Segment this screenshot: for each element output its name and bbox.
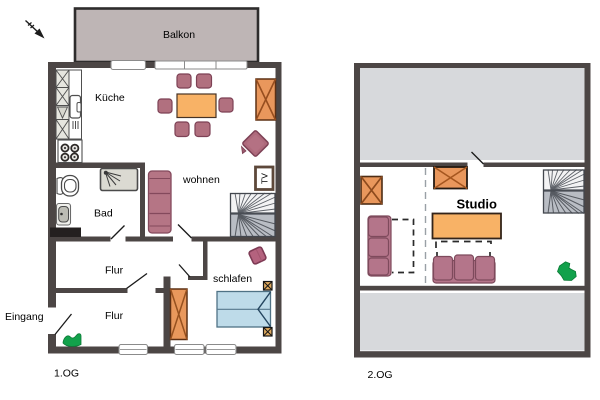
svg-text:1.OG: 1.OG	[54, 368, 79, 380]
svg-text:TV: TV	[260, 173, 270, 184]
svg-text:Küche: Küche	[95, 92, 125, 104]
svg-text:wohnen: wohnen	[182, 174, 220, 186]
svg-text:Studio: Studio	[457, 197, 497, 212]
svg-text:Balkon: Balkon	[163, 29, 195, 41]
svg-text:Eingang: Eingang	[5, 311, 44, 323]
svg-text:Flur: Flur	[105, 310, 124, 322]
svg-text:schlafen: schlafen	[213, 273, 252, 285]
svg-text:2.OG: 2.OG	[368, 369, 393, 381]
svg-text:Flur: Flur	[105, 265, 124, 277]
svg-text:Bad: Bad	[94, 208, 113, 220]
